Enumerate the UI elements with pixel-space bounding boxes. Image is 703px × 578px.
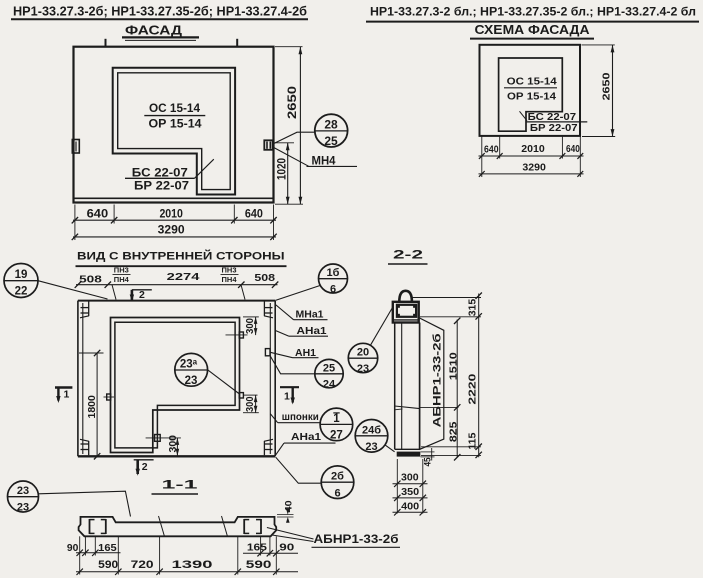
svg-text:508: 508 <box>79 274 102 286</box>
svg-text:640: 640 <box>566 144 580 155</box>
svg-text:МН4: МН4 <box>312 153 336 167</box>
svg-text:590: 590 <box>98 559 118 571</box>
svg-text:590: 590 <box>246 559 272 571</box>
svg-text:25: 25 <box>323 362 335 374</box>
svg-text:640: 640 <box>245 208 263 220</box>
svg-text:1390: 1390 <box>172 559 213 571</box>
svg-text:АБНР1-33-2б: АБНР1-33-2б <box>432 333 444 427</box>
svg-text:19: 19 <box>15 269 28 281</box>
svg-text:300: 300 <box>401 471 419 483</box>
svg-text:2: 2 <box>139 289 145 301</box>
svg-text:2220: 2220 <box>466 373 478 404</box>
svg-text:6: 6 <box>334 487 340 499</box>
svg-text:40: 40 <box>284 500 295 512</box>
svg-text:25: 25 <box>324 134 338 148</box>
svg-text:640: 640 <box>87 208 109 220</box>
svg-text:АНа1: АНа1 <box>297 326 328 337</box>
svg-text:23: 23 <box>357 363 369 375</box>
svg-text:22: 22 <box>15 286 28 298</box>
svg-text:1б: 1б <box>327 267 340 279</box>
svg-text:23: 23 <box>365 441 377 453</box>
svg-text:3290: 3290 <box>522 163 546 174</box>
svg-text:24б: 24б <box>362 424 381 436</box>
svg-text:1: 1 <box>64 389 70 401</box>
svg-text:23: 23 <box>17 485 29 497</box>
svg-text:БР 22-07: БР 22-07 <box>134 180 189 192</box>
svg-text:1: 1 <box>284 391 290 403</box>
svg-text:ВИД С ВНУТРЕННЕЙ СТОРОНЫ: ВИД С ВНУТРЕННЕЙ СТОРОНЫ <box>77 249 285 262</box>
svg-text:ПН4: ПН4 <box>114 275 130 284</box>
svg-text:1-1: 1-1 <box>162 478 199 492</box>
svg-text:165: 165 <box>247 542 267 554</box>
svg-text:АБНР1-33-2б: АБНР1-33-2б <box>314 534 399 546</box>
svg-text:СХЕМА ФАСАДА: СХЕМА ФАСАДА <box>475 23 590 37</box>
svg-text:300: 300 <box>244 396 256 412</box>
svg-text:МНа1: МНа1 <box>296 310 324 321</box>
svg-text:2010: 2010 <box>521 144 545 155</box>
svg-text:24: 24 <box>323 379 336 391</box>
svg-text:2-2: 2-2 <box>393 248 424 262</box>
svg-text:165: 165 <box>98 542 117 554</box>
svg-text:23: 23 <box>17 502 29 514</box>
svg-text:шпонки: шпонки <box>282 412 319 423</box>
svg-text:1: 1 <box>333 413 340 425</box>
svg-text:ОС 15-14: ОС 15-14 <box>149 103 201 115</box>
svg-text:2274: 2274 <box>167 271 200 283</box>
svg-text:ПН4: ПН4 <box>222 275 238 284</box>
svg-text:2010: 2010 <box>159 208 183 220</box>
svg-text:2б: 2б <box>331 471 344 483</box>
svg-text:508: 508 <box>254 272 275 284</box>
svg-text:27: 27 <box>330 430 343 442</box>
svg-text:1020: 1020 <box>276 158 288 180</box>
svg-text:ОС 15-14: ОС 15-14 <box>507 76 557 88</box>
svg-text:315: 315 <box>466 299 478 317</box>
svg-text:1800: 1800 <box>86 395 98 418</box>
svg-text:45: 45 <box>423 458 433 467</box>
svg-text:БР 22-07: БР 22-07 <box>530 123 578 134</box>
svg-text:825: 825 <box>447 421 459 442</box>
svg-text:ОР 15-14: ОР 15-14 <box>507 91 556 103</box>
svg-text:ОР 15-14: ОР 15-14 <box>149 119 203 131</box>
svg-text:400: 400 <box>401 500 419 512</box>
svg-text:ПН3: ПН3 <box>222 265 237 274</box>
svg-text:300: 300 <box>167 435 179 453</box>
svg-text:НР1-33.27.3-2б; НР1-33.27.35-2: НР1-33.27.3-2б; НР1-33.27.35-2б; НР1-33.… <box>13 4 307 19</box>
svg-text:6: 6 <box>330 283 336 295</box>
svg-text:АНа1: АНа1 <box>291 432 322 443</box>
svg-text:2650: 2650 <box>287 86 299 119</box>
svg-text:2: 2 <box>142 461 148 473</box>
svg-text:ФАСАД: ФАСАД <box>125 24 182 38</box>
svg-text:115: 115 <box>466 432 478 449</box>
svg-text:НР1-33.27.3-2 бл.; НР1-33.27.3: НР1-33.27.3-2 бл.; НР1-33.27.35-2 бл.; Н… <box>370 5 696 19</box>
svg-text:2650: 2650 <box>601 72 613 100</box>
svg-text:1510: 1510 <box>447 352 459 380</box>
svg-text:АН1: АН1 <box>295 348 316 359</box>
svg-text:23а: 23а <box>180 357 198 370</box>
svg-text:20: 20 <box>357 347 369 359</box>
svg-text:90: 90 <box>67 542 79 554</box>
svg-text:640: 640 <box>484 145 499 156</box>
svg-text:720: 720 <box>131 559 154 571</box>
svg-text:28: 28 <box>324 117 338 131</box>
svg-text:350: 350 <box>401 486 419 498</box>
svg-text:3290: 3290 <box>158 225 185 237</box>
svg-text:ПН3: ПН3 <box>114 265 129 274</box>
svg-text:90: 90 <box>279 542 294 554</box>
svg-text:23: 23 <box>185 375 198 387</box>
svg-text:300: 300 <box>244 318 256 334</box>
